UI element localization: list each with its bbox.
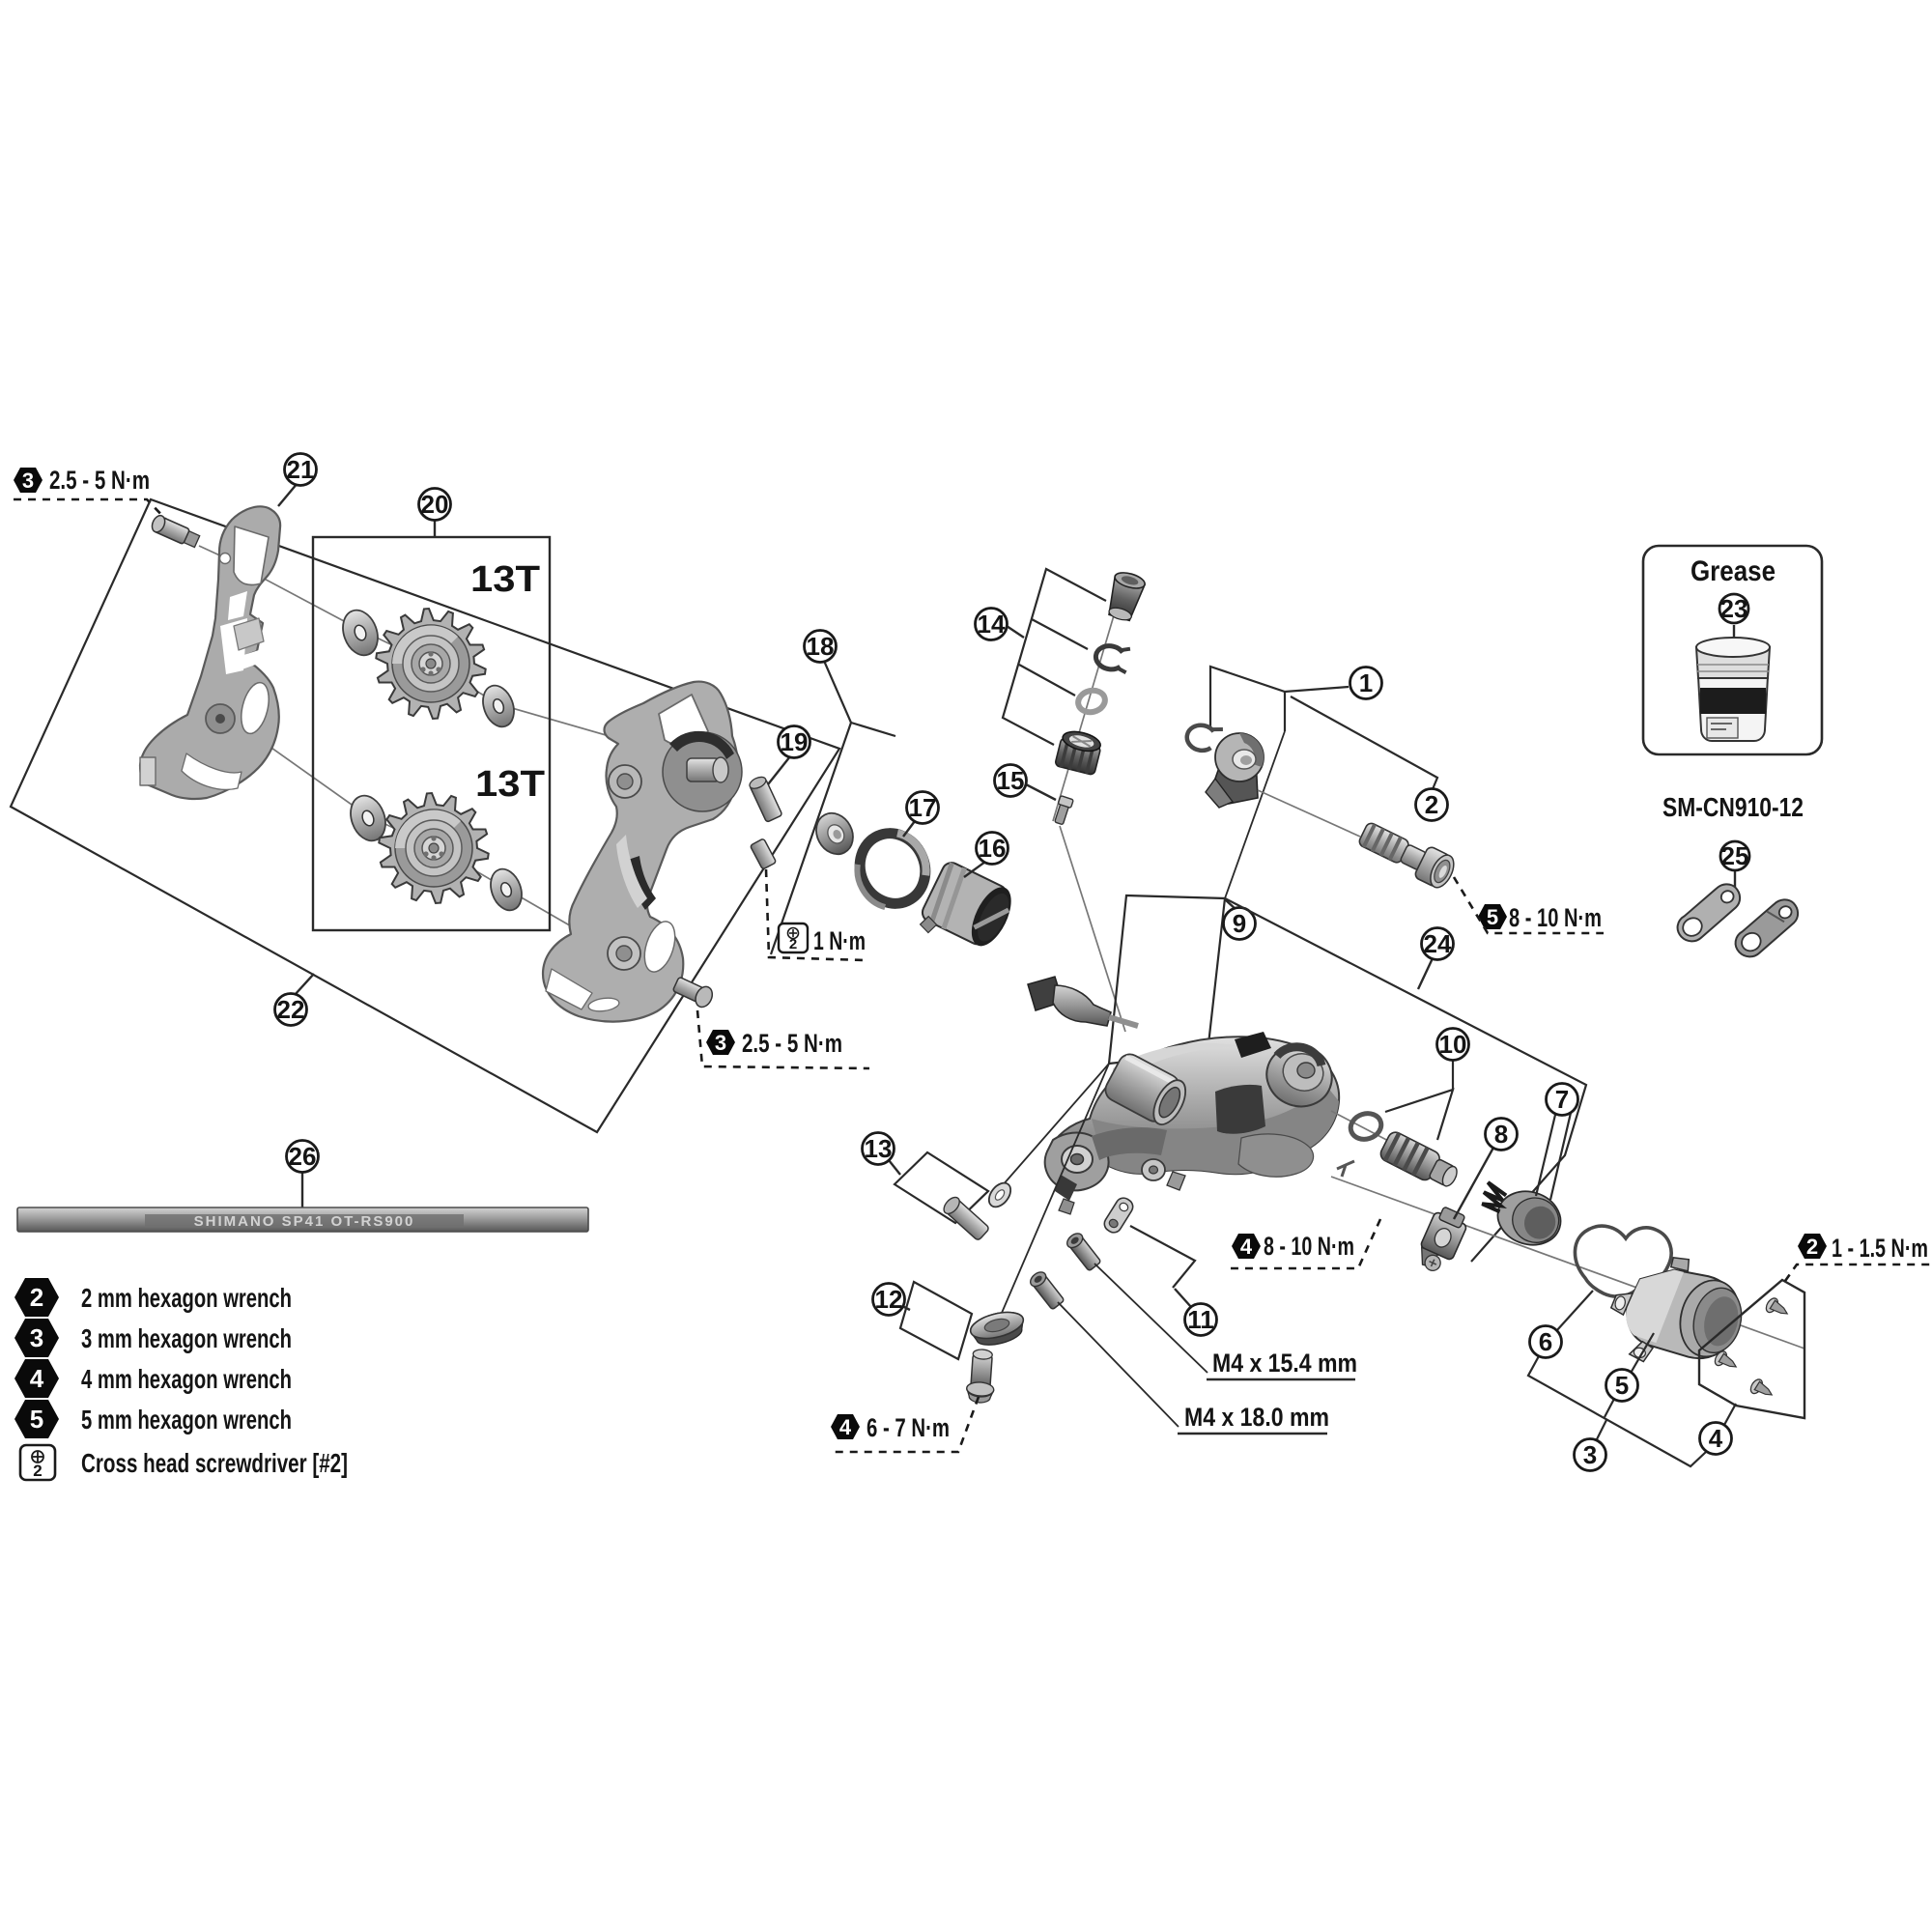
- svg-text:3: 3: [1583, 1440, 1597, 1469]
- svg-text:4: 4: [1709, 1424, 1723, 1453]
- svg-text:13: 13: [865, 1134, 893, 1163]
- svg-text:M4 x 15.4 mm: M4 x 15.4 mm: [1212, 1349, 1357, 1378]
- svg-text:12: 12: [875, 1285, 903, 1314]
- svg-text:7: 7: [1555, 1085, 1569, 1114]
- svg-text:23: 23: [1720, 594, 1748, 623]
- svg-text:4: 4: [1240, 1235, 1253, 1259]
- svg-text:10: 10: [1439, 1030, 1467, 1059]
- svg-text:8 - 10 N·m: 8 - 10 N·m: [1264, 1232, 1354, 1261]
- svg-text:6: 6: [1539, 1327, 1552, 1356]
- svg-text:19: 19: [781, 727, 809, 756]
- svg-text:11: 11: [1187, 1305, 1214, 1334]
- svg-text:2.5 - 5 N·m: 2.5 - 5 N·m: [742, 1029, 842, 1058]
- svg-text:2: 2: [1425, 790, 1438, 819]
- svg-text:18: 18: [807, 632, 835, 661]
- svg-text:2 mm hexagon wrench: 2 mm hexagon wrench: [81, 1283, 292, 1313]
- svg-text:Cross head screwdriver [#2]: Cross head screwdriver [#2]: [81, 1448, 348, 1478]
- svg-text:4: 4: [30, 1364, 44, 1393]
- svg-text:2: 2: [33, 1462, 42, 1480]
- svg-text:1: 1: [1359, 668, 1373, 697]
- svg-text:4: 4: [839, 1415, 852, 1439]
- svg-text:2: 2: [789, 936, 797, 952]
- svg-text:26: 26: [289, 1142, 317, 1171]
- svg-text:5: 5: [1615, 1371, 1629, 1400]
- svg-text:3: 3: [22, 469, 34, 493]
- svg-text:Grease: Grease: [1690, 555, 1776, 587]
- svg-text:4 mm hexagon wrench: 4 mm hexagon wrench: [81, 1364, 292, 1394]
- svg-text:5 mm hexagon wrench: 5 mm hexagon wrench: [81, 1405, 292, 1435]
- svg-text:SHIMANO SP41 OT-RS900: SHIMANO SP41 OT-RS900: [194, 1213, 415, 1230]
- svg-text:21: 21: [287, 455, 315, 484]
- svg-text:1 N·m: 1 N·m: [813, 926, 866, 955]
- svg-text:15: 15: [997, 766, 1025, 795]
- svg-text:9: 9: [1233, 909, 1246, 938]
- svg-text:M4 x 18.0 mm: M4 x 18.0 mm: [1184, 1403, 1329, 1432]
- svg-text:14: 14: [978, 610, 1006, 639]
- svg-text:16: 16: [979, 834, 1007, 863]
- svg-text:25: 25: [1721, 841, 1749, 870]
- svg-text:13T: 13T: [470, 559, 540, 600]
- svg-text:3: 3: [30, 1323, 43, 1352]
- svg-text:1 - 1.5 N·m: 1 - 1.5 N·m: [1832, 1234, 1928, 1263]
- svg-text:8 - 10 N·m: 8 - 10 N·m: [1509, 903, 1602, 932]
- svg-text:2: 2: [1806, 1235, 1818, 1259]
- svg-text:SM-CN910-12: SM-CN910-12: [1662, 792, 1804, 822]
- svg-text:20: 20: [421, 490, 449, 519]
- svg-text:5: 5: [1487, 905, 1498, 929]
- svg-text:3: 3: [715, 1031, 726, 1055]
- svg-text:8: 8: [1494, 1120, 1508, 1149]
- svg-text:2: 2: [30, 1283, 43, 1312]
- svg-text:13T: 13T: [475, 764, 545, 805]
- svg-text:2.5 - 5 N·m: 2.5 - 5 N·m: [49, 466, 150, 495]
- svg-text:22: 22: [277, 995, 305, 1024]
- svg-text:24: 24: [1424, 929, 1452, 958]
- svg-text:17: 17: [909, 793, 937, 822]
- svg-text:5: 5: [30, 1405, 43, 1434]
- svg-text:3 mm hexagon wrench: 3 mm hexagon wrench: [81, 1323, 292, 1353]
- svg-text:6 - 7 N·m: 6 - 7 N·m: [867, 1413, 950, 1442]
